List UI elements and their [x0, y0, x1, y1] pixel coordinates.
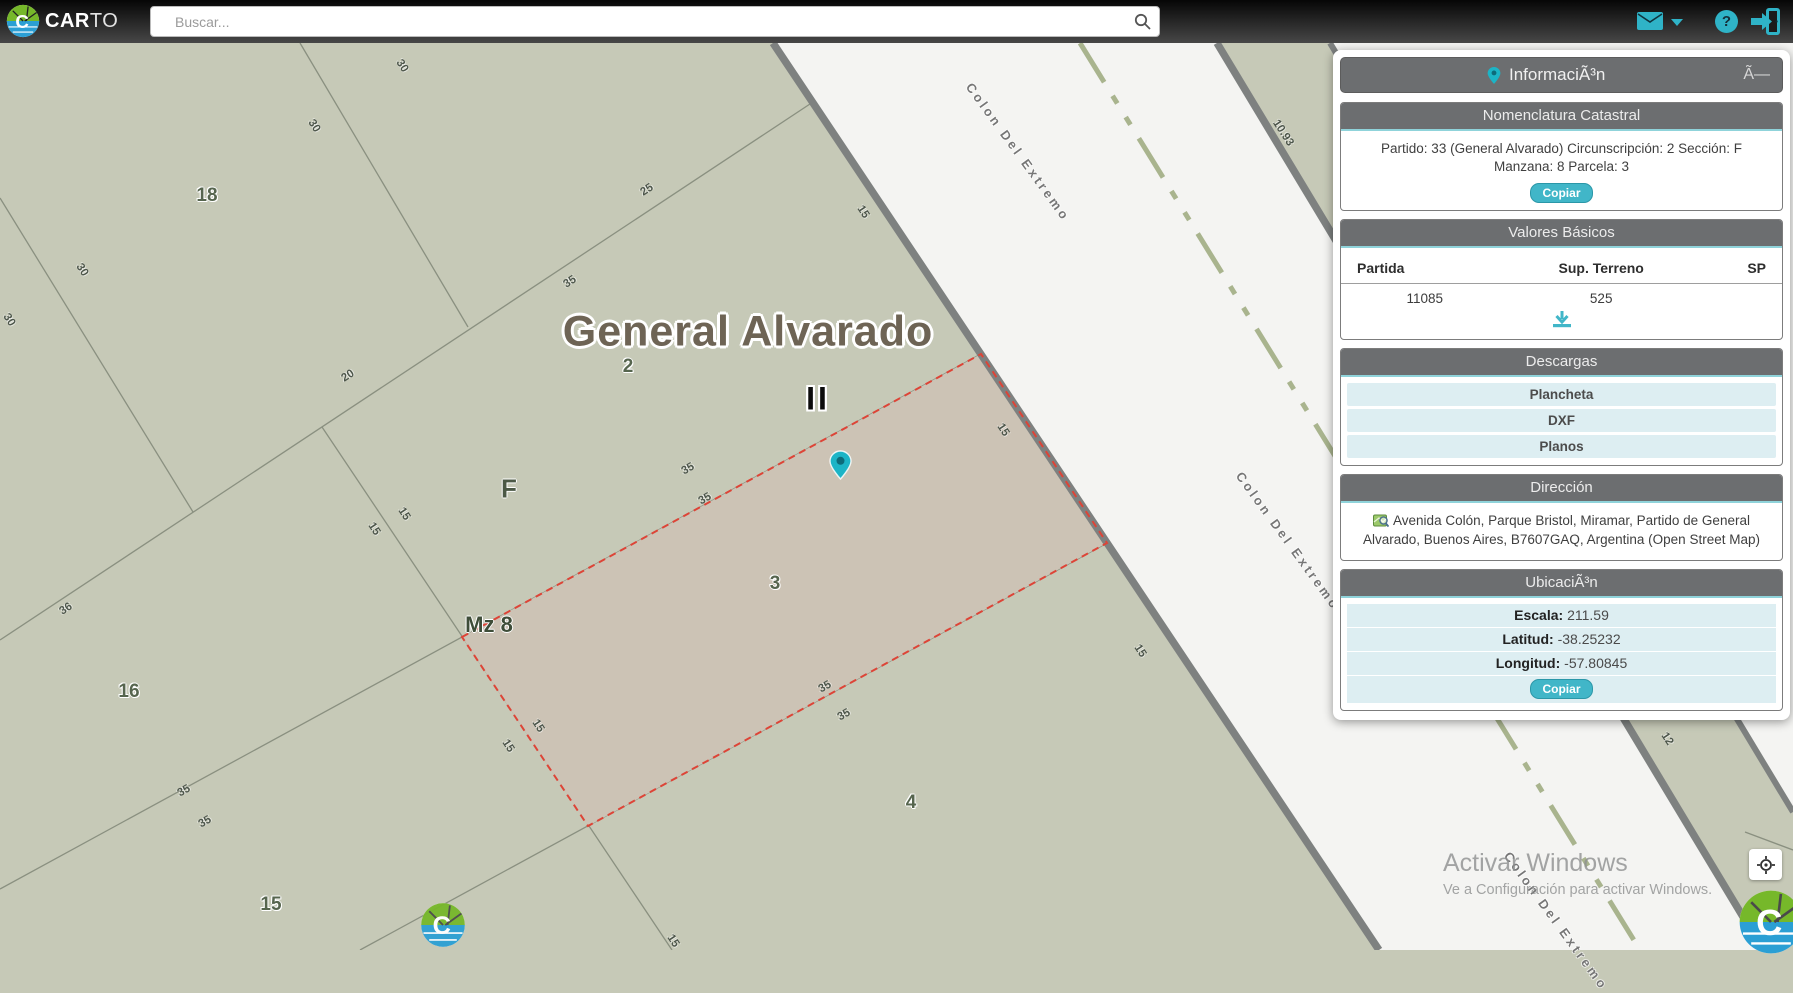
- panel-title: InformaciÃ³n: [1509, 65, 1605, 85]
- carto-globe-icon: C: [6, 4, 40, 38]
- map-search-icon: [1373, 513, 1389, 528]
- locate-me-button[interactable]: [1749, 849, 1782, 880]
- carto-logo: C CARTO: [6, 4, 118, 38]
- panel-header: InformaciÃ³n Ã—: [1340, 57, 1783, 93]
- valores-cell: 525: [1509, 284, 1694, 309]
- envelope-icon: [1637, 12, 1663, 30]
- crosshair-target-icon: [1757, 856, 1775, 874]
- messages-button[interactable]: [1637, 12, 1683, 30]
- ubicacion-list: Escala: 211.59Latitud: -38.25232Longitud…: [1341, 598, 1782, 710]
- download-item[interactable]: DXF: [1347, 409, 1776, 432]
- copy-ubicacion-button[interactable]: Copiar: [1530, 679, 1592, 699]
- help-button[interactable]: ?: [1715, 10, 1738, 33]
- search-box: [150, 6, 1160, 37]
- table-row: 11085525: [1341, 284, 1782, 309]
- valores-title: Valores Básicos: [1341, 220, 1782, 248]
- valores-column-header: SP: [1694, 254, 1782, 284]
- valores-table: PartidaSup. TerrenoSP 11085525: [1341, 254, 1782, 308]
- logout-icon[interactable]: [1749, 7, 1781, 36]
- topbar: C CARTO ?: [0, 0, 1793, 43]
- nomenclatura-text: Partido: 33 (General Alvarado) Circunscr…: [1341, 131, 1782, 180]
- ubicacion-card: UbicaciÃ³n Escala: 211.59Latitud: -38.25…: [1340, 569, 1783, 711]
- descargas-card: Descargas PlanchetaDXFPlanos: [1340, 348, 1783, 466]
- chevron-down-icon: [1671, 19, 1683, 26]
- search-input[interactable]: [150, 6, 1160, 37]
- direccion-title: Dirección: [1341, 475, 1782, 503]
- windows-activation-watermark-sub: Ve a Configuración para activar Windows.: [1443, 882, 1712, 898]
- direccion-card: Dirección Avenida Colón, Parque Bristol,…: [1340, 474, 1783, 561]
- direccion-body: Avenida Colón, Parque Bristol, Miramar, …: [1341, 503, 1782, 560]
- pin-icon: [1487, 66, 1501, 85]
- svg-text:C: C: [433, 912, 451, 940]
- location-row: Latitud: -38.25232: [1347, 628, 1776, 652]
- descargas-list: PlanchetaDXFPlanos: [1341, 377, 1782, 465]
- download-icon: [1551, 310, 1573, 328]
- close-button[interactable]: Ã—: [1741, 66, 1772, 84]
- location-copy-row: Copiar: [1347, 676, 1776, 703]
- download-item[interactable]: Plancheta: [1347, 383, 1776, 406]
- svg-text:C: C: [15, 11, 28, 32]
- download-values-button[interactable]: [1341, 308, 1782, 339]
- svg-text:C: C: [1756, 902, 1782, 943]
- carto-logo-text: CARTO: [45, 10, 118, 33]
- direccion-text: Avenida Colón, Parque Bristol, Miramar, …: [1363, 513, 1760, 547]
- location-row: Longitud: -57.80845: [1347, 652, 1776, 676]
- valores-card: Valores Básicos PartidaSup. TerrenoSP 11…: [1340, 219, 1783, 340]
- descargas-title: Descargas: [1341, 349, 1782, 377]
- carto-globe-logo-corner: C: [1738, 889, 1793, 955]
- valores-column-header: Sup. Terreno: [1509, 254, 1694, 284]
- windows-activation-watermark: Activar Windows: [1443, 849, 1628, 878]
- valores-cell: 11085: [1341, 284, 1509, 309]
- ubicacion-title: UbicaciÃ³n: [1341, 570, 1782, 598]
- valores-column-header: Partida: [1341, 254, 1509, 284]
- valores-cell: [1694, 284, 1782, 309]
- nomenclatura-title: Nomenclatura Catastral: [1341, 103, 1782, 131]
- nomenclatura-card: Nomenclatura Catastral Partido: 33 (Gene…: [1340, 102, 1783, 211]
- info-panel: InformaciÃ³n Ã— Nomenclatura Catastral P…: [1333, 50, 1790, 720]
- copy-nomenclatura-button[interactable]: Copiar: [1530, 183, 1592, 203]
- location-row: Escala: 211.59: [1347, 604, 1776, 628]
- carto-globe-watermark: C: [420, 902, 466, 948]
- download-item[interactable]: Planos: [1347, 435, 1776, 458]
- map-pin-icon[interactable]: [829, 450, 852, 480]
- search-icon[interactable]: [1134, 13, 1151, 30]
